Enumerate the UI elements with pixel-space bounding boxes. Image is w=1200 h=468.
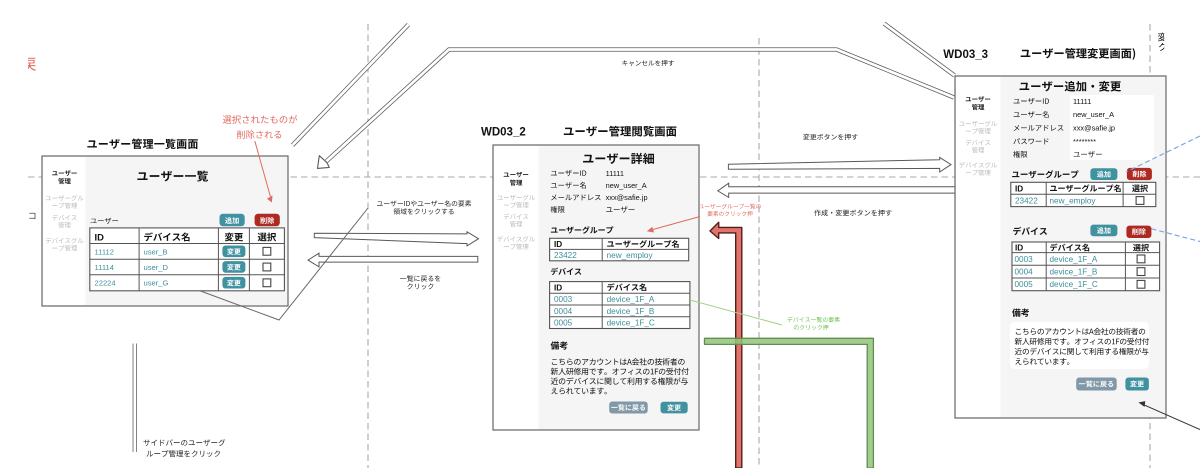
svg-text:user_D: user_D [144,263,169,272]
svg-text:user_G: user_G [144,279,169,288]
svg-text:0004: 0004 [1015,268,1034,277]
svg-text:ID: ID [95,231,105,242]
svg-text:xxx@safie.jp: xxx@safie.jp [1073,124,1115,133]
svg-text:ID: ID [1015,184,1023,193]
svg-text:new_employ: new_employ [1050,197,1097,206]
svg-text:23422: 23422 [1015,197,1038,206]
svg-text:WD03_2: WD03_2 [481,127,526,139]
svg-text:WD03_3: WD03_3 [943,49,988,61]
svg-text:22224: 22224 [95,279,116,288]
svg-text:user_B: user_B [144,247,168,256]
svg-text:ID: ID [1015,244,1023,253]
svg-text:ID: ID [554,240,562,249]
svg-text:23422: 23422 [554,251,577,260]
svg-text:new_user_A: new_user_A [1073,110,1114,119]
svg-text:11114: 11114 [95,263,114,272]
svg-text:0005: 0005 [554,319,573,328]
svg-text:xxx@safie.jp: xxx@safie.jp [606,193,648,202]
svg-text:device_1F_A: device_1F_A [1050,255,1098,264]
svg-text:device_1F_C: device_1F_C [607,319,655,328]
svg-text:11112: 11112 [95,247,114,256]
svg-text:new_employ: new_employ [607,251,654,260]
svg-text:device_1F_B: device_1F_B [607,307,655,316]
svg-text:0003: 0003 [554,295,573,304]
svg-text:0005: 0005 [1015,280,1034,289]
svg-text:device_1F_A: device_1F_A [607,295,655,304]
svg-text:0004: 0004 [554,307,573,316]
svg-text:new_user_A: new_user_A [606,181,647,190]
svg-text:device_1F_C: device_1F_C [1050,280,1098,289]
svg-text:0003: 0003 [1015,255,1034,264]
svg-text:ID: ID [554,283,562,292]
svg-text:11111: 11111 [1073,97,1091,106]
svg-text:device_1F_B: device_1F_B [1050,268,1098,277]
svg-text:********: ******** [1073,137,1096,146]
svg-text:11111: 11111 [606,169,624,178]
